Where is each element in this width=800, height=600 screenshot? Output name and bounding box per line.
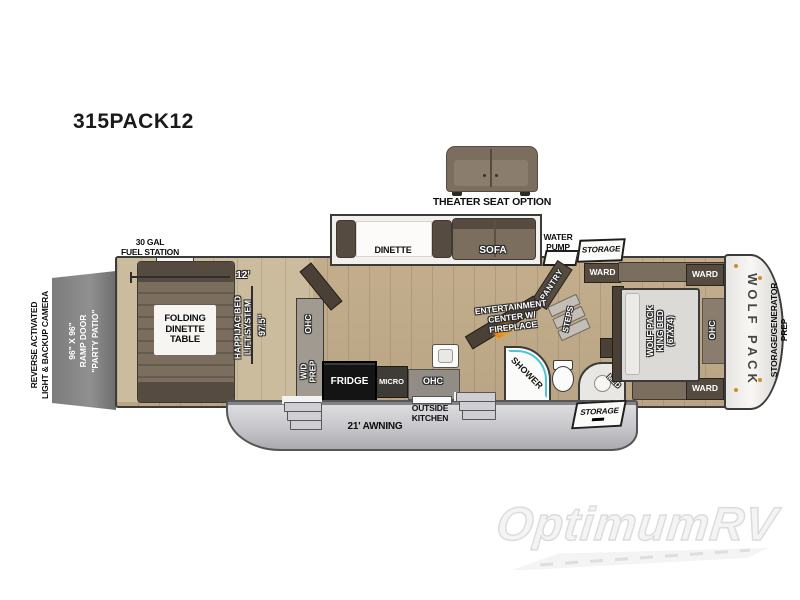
outside-kitchen-label: OUTSIDE KITCHEN: [403, 404, 457, 423]
storage-compartment-bottom: STORAGE: [571, 400, 627, 430]
sink-basin: [438, 349, 453, 363]
dim-97-label: 97.5": [257, 306, 269, 344]
sofa-armrest-bottom: [138, 382, 234, 402]
dinette-seat-left: [336, 220, 356, 258]
theater-seat-button-left: [483, 174, 486, 177]
theater-seat-body: [446, 146, 538, 192]
sofa-label: SOFA: [452, 245, 534, 257]
wolf-pack-logo: WOLF PACK: [744, 270, 760, 390]
backup-camera-label: REVERSE ACTIVATED LIGHT & BACKUP CAMERA: [29, 269, 51, 421]
fridge-label: FRIDGE: [331, 376, 369, 388]
theater-seat-button-right: [495, 174, 498, 177]
theater-seat-divider: [490, 149, 492, 187]
bed-pillow: [625, 293, 640, 375]
storage-bottom-label: STORAGE: [579, 407, 619, 418]
dim-12ft-line: [131, 276, 230, 278]
dinette-label: DINETTE: [358, 245, 428, 255]
storage-generator-prep-label: STORAGE/GENERATOR PREP: [770, 275, 790, 385]
kitchen-ohc-label: OHC: [410, 376, 456, 386]
wd-prep-label: W/D PREP: [300, 357, 319, 387]
dim-12ft-label: 12': [231, 270, 255, 282]
ramp-door: 96" X 96" RAMP DOOR "PARTY PATIO": [52, 271, 116, 410]
folding-dinette-table-label: FOLDING DINETTE TABLE: [164, 314, 205, 346]
toilet: [552, 366, 574, 392]
water-pump-label: WATER PUMP: [538, 233, 578, 252]
cap-rivet-1: [734, 264, 738, 268]
theater-seat-graphic: [446, 146, 536, 198]
fuel-station-label: 30 GAL FUEL STATION: [108, 238, 192, 257]
micro-label: MICRO: [379, 378, 404, 387]
entry-steps-1c: [290, 420, 322, 430]
floor-plan: 315PACK12 REVERSE ACTIVATED LIGHT & BACK…: [0, 0, 800, 600]
dinette-seat-right: [432, 220, 452, 258]
storage-top-label: STORAGE: [581, 245, 620, 255]
folding-dinette-table: FOLDING DINETTE TABLE: [154, 305, 216, 355]
storage-compartment-top: STORAGE: [576, 238, 626, 263]
ward-entry: WARD: [584, 263, 621, 283]
happijac-label: HAPPIJAC BED LIFT SYSTEM: [234, 288, 255, 368]
ward-entry-label: WARD: [590, 268, 616, 278]
cap-rivet-2: [734, 388, 738, 392]
fridge: FRIDGE: [322, 361, 377, 402]
ward-top-label: WARD: [692, 270, 718, 280]
kitchen-sink: [432, 344, 459, 368]
bed-label: WOLF PACK KING BED (67X74): [646, 299, 676, 363]
plan-title: 315PACK12: [73, 110, 194, 134]
entry-steps-2c: [462, 410, 496, 420]
bedroom-ohc-label: OHC: [708, 315, 718, 345]
storage-bottom-latch: [592, 418, 605, 421]
ward-top: WARD: [686, 264, 724, 286]
plan-title-text: 315PACK12: [73, 110, 194, 133]
ward-bottom-label: WARD: [692, 384, 718, 394]
garage-ohc-label: OHC: [304, 309, 314, 339]
watermark: OptimumRV: [494, 496, 780, 551]
theater-seat-option-label: THEATER SEAT OPTION: [427, 197, 557, 209]
ramp-door-label: 96" X 96" RAMP DOOR "PARTY PATIO": [67, 276, 101, 406]
microwave: MICRO: [375, 366, 408, 398]
sofa-armrest-top: [138, 262, 234, 282]
